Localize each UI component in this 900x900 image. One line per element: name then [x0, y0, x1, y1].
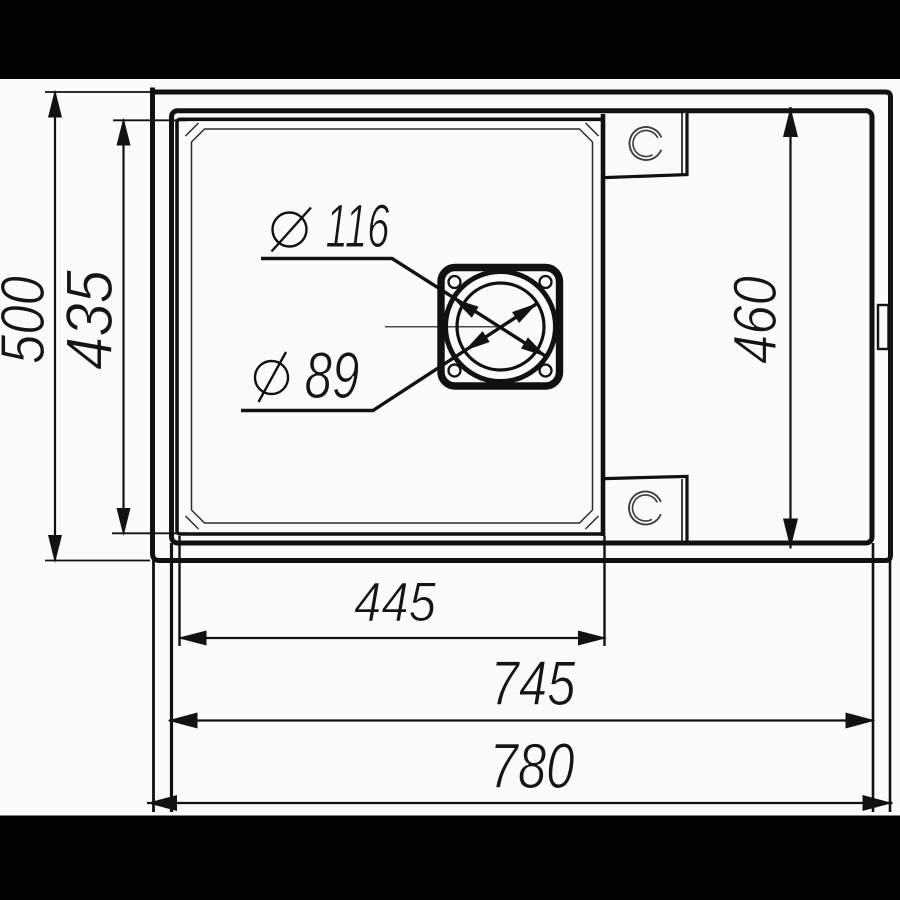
svg-text:435: 435 [52, 270, 126, 370]
svg-text:445: 445 [354, 570, 437, 633]
svg-text:460: 460 [721, 276, 789, 364]
svg-text:745: 745 [491, 649, 577, 719]
svg-text:780: 780 [490, 730, 575, 802]
svg-text:116: 116 [326, 192, 390, 260]
svg-text:89: 89 [305, 338, 360, 412]
svg-text:500: 500 [0, 276, 58, 364]
